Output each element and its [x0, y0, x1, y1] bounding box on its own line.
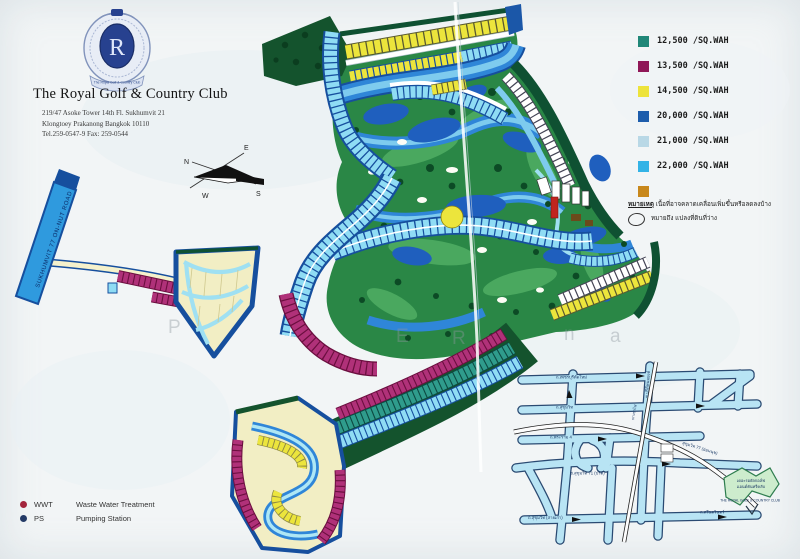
legend-label: 12,500 /SQ.WAH: [657, 36, 729, 46]
address-line-3: Tel.259-0547-9 Fax: 259-0544: [42, 129, 165, 140]
page-title: The Royal Golf & Country Club: [33, 86, 263, 103]
compass-s: S: [256, 191, 261, 198]
svg-text:แอนด์คันทรีคลับ: แอนด์คันทรีคลับ: [737, 484, 766, 489]
svg-text:เดอะรอยัลกอล์ฟ: เดอะรอยัลกอล์ฟ: [737, 478, 765, 483]
legend-label: 21,000 /SQ.WAH: [657, 136, 729, 146]
note-line-1: หมายเหตุ เนื้อที่อาจคลาดเคลื่อนเพิ่มขึ้น…: [628, 201, 793, 210]
swatch-gold: [638, 186, 649, 197]
svg-text:ถ.ศรีนครินทร์: ถ.ศรีนครินทร์: [700, 509, 725, 514]
note-line-2: หมายถึง แปลงที่ดินที่ว่าง: [628, 213, 793, 226]
vacant-note-text: หมายถึง แปลงที่ดินที่ว่าง: [651, 215, 717, 224]
note-text: เนื้อที่อาจคลาดเคลื่อนเพิ่มขึ้นหรือลดลงบ…: [656, 201, 771, 208]
svg-text:ถ.พระราม 4: ถ.พระราม 4: [550, 435, 572, 440]
legend-row: 13,500 /SQ.WAH: [638, 59, 793, 73]
swatch-22000: [638, 161, 649, 172]
svg-text:n: n: [564, 324, 575, 345]
wwt-abbr: WWT: [34, 500, 76, 509]
legend-note: หมายเหตุ เนื้อที่อาจคลาดเคลื่อนเพิ่มขึ้น…: [628, 201, 793, 226]
legend-row: 12,500 /SQ.WAH: [638, 34, 793, 48]
svg-text:THE ROYAL GOLF & COUNTRY CLUB: THE ROYAL GOLF & COUNTRY CLUB: [720, 499, 781, 503]
brown-building: [571, 214, 581, 221]
brown-building-2: [585, 220, 593, 226]
svg-text:ซ.สุขุมวิท 71 (ปรีดี): ซ.สุขุมวิท 71 (ปรีดี): [570, 471, 605, 477]
legend-row: 20,000 /SQ.WAH: [638, 109, 793, 123]
note-heading: หมายเหตุ: [628, 201, 654, 208]
legend-label: 22,000 /SQ.WAH: [657, 161, 729, 171]
legend-label: 14,500 /SQ.WAH: [657, 86, 729, 96]
club-address: 219/47 Asoke Tower 14th Fl. Sukhumvit 21…: [42, 108, 165, 140]
yellow-culdesac: [441, 206, 463, 228]
ps-label: Pumping Station: [76, 514, 131, 523]
inset-buildings: [661, 444, 673, 462]
inset-street-map: ถ.เพชรบุรีตัดใหม่ ถ.สุขุมวิท ถ.พระราม 4 …: [514, 362, 781, 542]
legend-row: 14,500 /SQ.WAH: [638, 84, 793, 98]
price-legend: 12,500 /SQ.WAH 13,500 /SQ.WAH 14,500 /SQ…: [638, 34, 793, 209]
ps-abbr: PS: [34, 514, 76, 523]
address-line-1: 219/47 Asoke Tower 14th Fl. Sukhumvit 21: [42, 108, 165, 119]
swatch-13500: [638, 61, 649, 72]
compass-e: E: [244, 145, 249, 152]
compass-n: N: [184, 159, 189, 166]
swatch-12500: [638, 36, 649, 47]
legend-label: 13,500 /SQ.WAH: [657, 61, 729, 71]
vacant-plot-circle-icon: [627, 211, 646, 226]
address-line-2: Klongtoey Prakanong Bangkok 10110: [42, 119, 165, 130]
crest-monogram: R: [109, 35, 125, 61]
svg-text:R: R: [452, 328, 466, 349]
red-building: [551, 197, 558, 218]
svg-text:E: E: [396, 326, 409, 347]
svg-text:P: P: [168, 317, 181, 338]
swatch-14500: [638, 86, 649, 97]
swatch-20000: [638, 111, 649, 122]
legend-row: 22,000 /SQ.WAH: [638, 159, 793, 173]
ps-dot-icon: [20, 515, 27, 522]
ps-row: PS Pumping Station: [20, 514, 155, 523]
legend-label: 20,000 /SQ.WAH: [657, 111, 729, 121]
triangle-neighbourhood: [176, 248, 258, 356]
svg-text:a: a: [610, 326, 621, 347]
legend-row: [638, 184, 793, 198]
brochure-map-page: SUKHUMVIT 77 ON-NUT ROAD: [0, 0, 800, 559]
wwt-label: Waste Water Treatment: [76, 500, 155, 509]
wwt-row: WWT Waste Water Treatment: [20, 500, 155, 509]
crest-ribbon-text: The Royal Golf & Country Club: [94, 81, 141, 85]
facilities-legend: WWT Waste Water Treatment PS Pumping Sta…: [20, 500, 155, 528]
south-cluster: [232, 398, 344, 552]
wwt-dot-icon: [20, 501, 27, 508]
svg-text:ถ.เพชรบุรีตัดใหม่: ถ.เพชรบุรีตัดใหม่: [556, 374, 587, 381]
club-crest: R The Royal Golf & Country Club: [84, 9, 150, 91]
compass-w: W: [202, 193, 209, 200]
swatch-21000: [638, 136, 649, 147]
legend-row: 21,000 /SQ.WAH: [638, 134, 793, 148]
